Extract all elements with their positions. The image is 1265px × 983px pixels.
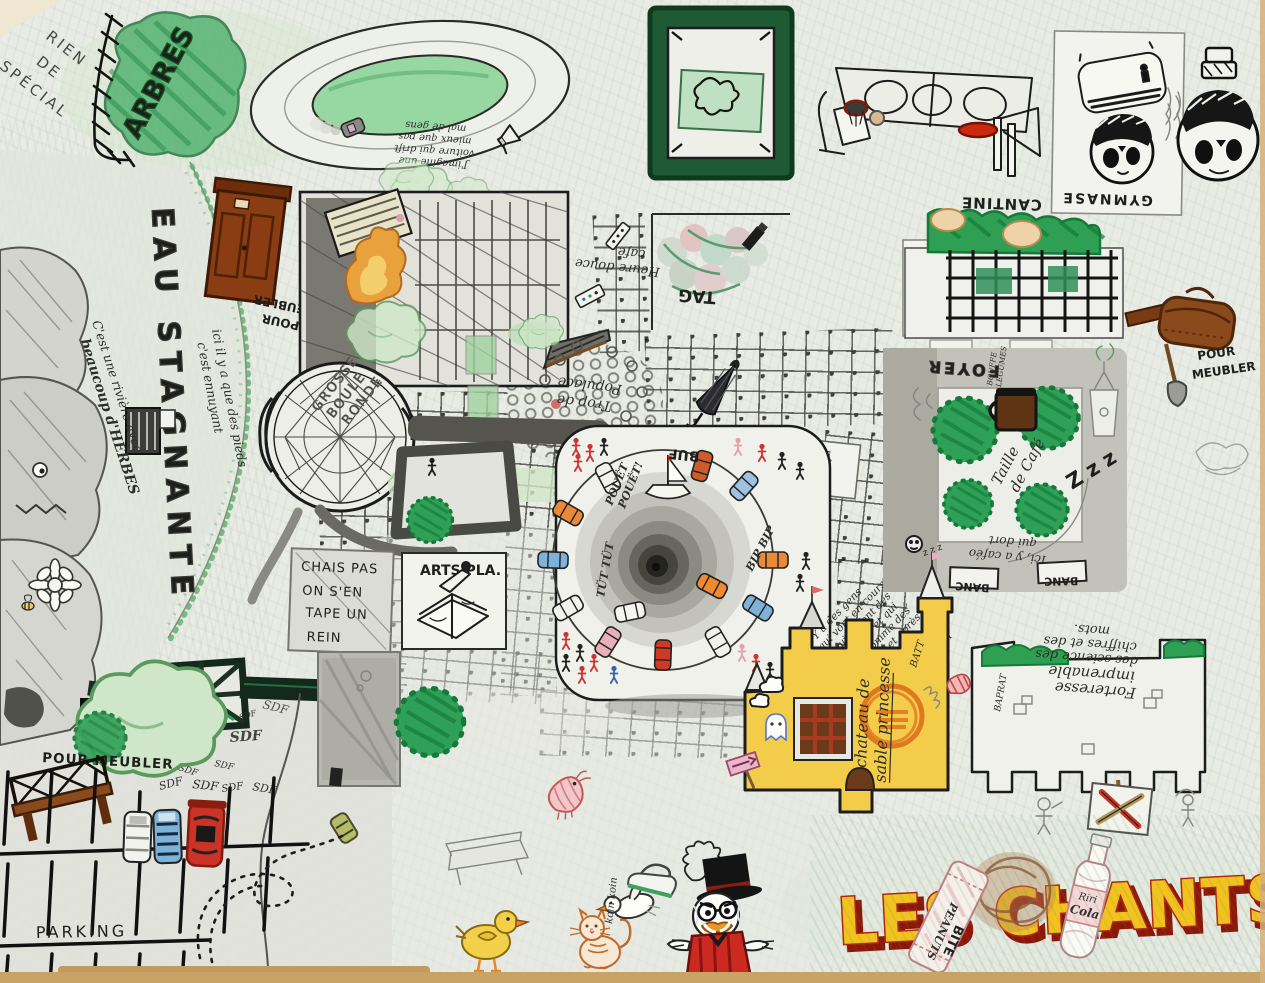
green-bush xyxy=(944,480,992,528)
banc-sign-right: BANC xyxy=(1038,561,1087,589)
table-edge xyxy=(0,972,1265,983)
table-edge-right xyxy=(1260,0,1265,983)
fort-line5: mots. xyxy=(1073,621,1110,638)
chateau-line1: chateau de xyxy=(851,678,873,768)
shovel xyxy=(1166,344,1186,406)
map-drawing: RIEN DE SPÉCIAL ARBRES J'imagi xyxy=(0,0,1265,983)
ghost-figure xyxy=(766,714,786,740)
leather-bag xyxy=(1157,284,1238,351)
crossed-swords-sign xyxy=(1088,780,1152,835)
rien-line2: DE xyxy=(33,52,65,83)
sleepy-smiley xyxy=(906,536,922,552)
drawing-page: RIEN DE SPÉCIAL ARBRES J'imagi xyxy=(0,0,1265,983)
banc-label-left: BANC xyxy=(955,579,990,594)
castle-gate xyxy=(846,768,874,790)
dark-building xyxy=(300,189,568,386)
foyer-plaza: Taille de Café FOYER BOUFFE LÉGUMES Z z … xyxy=(883,344,1127,595)
trampoline xyxy=(650,8,792,178)
coffee-mug xyxy=(990,388,1036,430)
wardrobe xyxy=(201,178,291,304)
chicken xyxy=(931,209,965,231)
arts-pla-square: ARTS PLA. xyxy=(402,553,506,649)
green-bush xyxy=(408,498,453,543)
heure-line2: café xyxy=(617,244,646,262)
sdf: SDF xyxy=(192,777,220,794)
tag-graffiti-wall: TAG xyxy=(652,214,790,330)
chais-pas-note: CHAIS PAS ON S'EN TAPE UN REIN xyxy=(288,548,393,653)
paper-corner xyxy=(0,0,62,36)
basketball-court xyxy=(819,68,1040,176)
furniture-right: POUR MEUBLER xyxy=(1125,284,1256,475)
faint-creature-sketch xyxy=(1196,443,1248,475)
chicken xyxy=(1003,221,1041,247)
sound-buf: BUF xyxy=(667,445,700,464)
green-cloud-bush xyxy=(346,301,425,362)
umbrella-icon xyxy=(683,354,747,434)
label-cantine: CANTINE xyxy=(961,193,1042,214)
castle-window xyxy=(794,698,852,760)
chais-line1: CHAIS PAS xyxy=(301,560,379,578)
label-gymnase: GYMNASE xyxy=(1061,189,1153,208)
sdf: SDF xyxy=(229,728,263,746)
trop-populace-note: Trop de Populace xyxy=(555,373,624,415)
label-parking: PARKING xyxy=(36,921,128,942)
chais-line4: REIN xyxy=(306,630,341,646)
pink-ball xyxy=(396,214,404,222)
green-bush xyxy=(933,398,997,462)
green-bush xyxy=(396,688,463,755)
gymnase-poster: GYMNASE xyxy=(1051,31,1184,215)
green-bush xyxy=(1016,484,1067,535)
skull-small xyxy=(1091,114,1153,183)
green-cloud-bush xyxy=(519,315,564,349)
basketball xyxy=(870,111,884,125)
chais-line2: ON S'EN xyxy=(302,584,363,601)
banc-label-right: BANC xyxy=(1044,574,1078,588)
fortress: Forteresse imprenable des science des ch… xyxy=(945,618,1205,835)
chais-line3: TAPE UN xyxy=(304,606,368,623)
heure-cafe-note: Heure douce café xyxy=(574,239,663,279)
label-tag: TAG xyxy=(678,284,717,307)
